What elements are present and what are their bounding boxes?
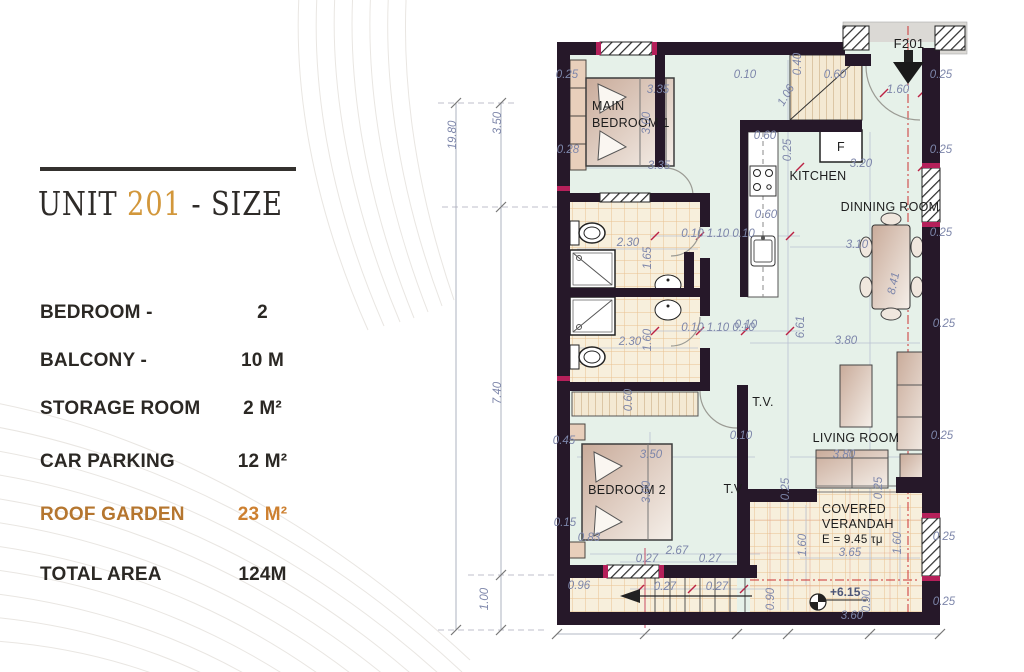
dim-label: 2.30 bbox=[616, 237, 640, 249]
spec-label: BEDROOM - bbox=[40, 302, 225, 324]
dining-chair bbox=[860, 277, 872, 297]
spec-value: 2 bbox=[225, 302, 300, 324]
dim-label: 0.25 bbox=[782, 138, 794, 161]
dim-label: 0.25 bbox=[930, 69, 953, 81]
dim-label: 0.60 bbox=[754, 130, 777, 142]
dim-label: 0.27 bbox=[636, 553, 659, 565]
dim-label: 0.27 bbox=[699, 553, 722, 565]
page-title: UNIT 201 - SIZE bbox=[38, 184, 283, 223]
dim-label: 3.80 bbox=[835, 335, 858, 347]
fridge-label: F bbox=[837, 140, 845, 154]
dim-label: 1.65 bbox=[642, 246, 654, 269]
room-label-main-bedroom-1: MAIN bbox=[592, 99, 624, 113]
dim-label: 2.30 bbox=[618, 336, 642, 348]
dim-label: 3.65 bbox=[839, 547, 862, 559]
elevation-label: +6.15 bbox=[830, 585, 861, 599]
dim-label: 0.25 bbox=[933, 596, 956, 608]
dim-label: 0.60 bbox=[824, 69, 847, 81]
dim-label: 1.60 bbox=[797, 533, 809, 556]
title-prefix: UNIT bbox=[38, 184, 117, 223]
verandah-area-label: E = 9.45 τμ bbox=[822, 534, 883, 546]
spec-label: BALCONY - bbox=[40, 350, 225, 372]
spec-row-total-area: TOTAL AREA 124M bbox=[40, 564, 300, 586]
dim-label: 0.25 bbox=[930, 144, 953, 156]
window-right-2 bbox=[922, 518, 940, 576]
dim-label: 2.67 bbox=[665, 545, 689, 557]
b2-nightstand bbox=[569, 542, 585, 558]
dim-label: 6.61 bbox=[795, 316, 807, 338]
dim-label: 0.45 bbox=[553, 435, 576, 447]
dim-label: 0.90 bbox=[765, 587, 777, 610]
opening-bath-top bbox=[600, 193, 650, 202]
landing-wall-1 bbox=[843, 26, 869, 50]
dim-label: 0.96 bbox=[568, 580, 591, 592]
dim-label: 1.60 bbox=[642, 328, 654, 351]
title-unit-number: 201 bbox=[127, 184, 182, 223]
spec-value: 2 M² bbox=[225, 398, 300, 420]
spec-value: 12 M² bbox=[225, 451, 300, 473]
unit-number-label: F201 bbox=[894, 36, 925, 51]
dim-label: 0.40 bbox=[792, 52, 804, 75]
dim-label: 0.25 bbox=[780, 477, 792, 500]
spec-row-roof-garden: ROOF GARDEN 23 M² bbox=[40, 504, 300, 526]
dim-label: 3.20 bbox=[850, 158, 873, 170]
dining-chair bbox=[911, 277, 923, 297]
dim-label: 0.25 bbox=[930, 227, 953, 239]
dim-label: 1.60 bbox=[892, 531, 904, 554]
dim-label: 3.00 bbox=[641, 111, 653, 134]
toilet-2 bbox=[570, 345, 579, 369]
b2-wardrobe bbox=[572, 392, 698, 416]
toilet-1 bbox=[570, 221, 579, 245]
dim-label: 0.27 bbox=[706, 581, 729, 593]
dining-chair bbox=[911, 237, 923, 257]
dim-label: 3.60 bbox=[841, 610, 864, 622]
unit-info-panel: UNIT 201 - SIZE BEDROOM - 2 BALCONY - 10… bbox=[0, 0, 440, 672]
brochure-page: MAIN BEDROOM 1 KITCHEN DINNING ROOM LIVI… bbox=[0, 0, 1024, 672]
dining-chair bbox=[881, 308, 901, 320]
tv-label-1: T.V. bbox=[752, 395, 774, 409]
dim-label: 0.10 bbox=[730, 430, 753, 442]
spec-value: 10 M bbox=[225, 350, 300, 372]
spec-row-balcony: BALCONY - 10 M bbox=[40, 350, 300, 372]
dim-label: 0.15 bbox=[554, 517, 577, 529]
dim-label: 0.10 bbox=[735, 319, 758, 331]
dining-table bbox=[872, 225, 910, 309]
title-rule bbox=[40, 167, 296, 171]
dim-label: 0.60 bbox=[623, 388, 635, 411]
dim-label: 19.80 bbox=[447, 120, 459, 149]
spec-label: CAR PARKING bbox=[40, 451, 225, 473]
dim-label: 0.83 bbox=[578, 532, 601, 544]
dim-label: 7.40 bbox=[492, 381, 504, 404]
window-bottom-strip bbox=[607, 565, 659, 578]
dim-label: 3.50 bbox=[640, 449, 663, 461]
dim-label: 0.25 bbox=[931, 430, 954, 442]
room-label-verandah-1: COVERED bbox=[822, 502, 886, 516]
title-suffix: - SIZE bbox=[191, 184, 283, 223]
dim-label: 3.00 bbox=[641, 480, 653, 503]
spec-label: ROOF GARDEN bbox=[40, 504, 225, 526]
dim-label: 3.35 bbox=[647, 84, 670, 96]
spec-row-bedroom: BEDROOM - 2 bbox=[40, 302, 300, 324]
coffee-table bbox=[840, 365, 872, 427]
spec-row-storage: STORAGE ROOM 2 M² bbox=[40, 398, 300, 420]
dim-label: 0.28 bbox=[557, 144, 580, 156]
room-label-bedroom2: BEDROOM 2 bbox=[588, 483, 666, 497]
dim-label: 0.10 bbox=[734, 69, 757, 81]
dim-label: 1.00 bbox=[479, 587, 491, 610]
dim-label: 1.60 bbox=[887, 84, 910, 96]
dim-label: 0.60 bbox=[755, 209, 778, 221]
room-label-dining: DINNING ROOM bbox=[841, 200, 940, 214]
landing-wall-2 bbox=[935, 26, 965, 50]
dim-label: 0.25 bbox=[873, 476, 885, 499]
dim-label: 0.25 bbox=[933, 531, 956, 543]
dim-label: 0.25 bbox=[556, 69, 579, 81]
dim-label: 0.25 bbox=[933, 318, 956, 330]
dim-label: 3.35 bbox=[648, 160, 671, 172]
entry-arrow-stem bbox=[904, 50, 913, 62]
spec-label: TOTAL AREA bbox=[40, 564, 225, 586]
spec-value: 23 M² bbox=[225, 504, 300, 526]
window-top bbox=[600, 42, 652, 55]
dim-label: 0.90 bbox=[861, 589, 873, 612]
dim-label: 0.10 1.10 0.10 bbox=[681, 228, 755, 240]
room-label-living: LIVING ROOM bbox=[813, 431, 900, 445]
dim-label: 3.10 bbox=[846, 239, 869, 251]
room-label-verandah-2: VERANDAH bbox=[822, 517, 894, 531]
room-label-kitchen: KITCHEN bbox=[790, 169, 847, 183]
dim-label: 3.80 bbox=[833, 449, 856, 461]
spec-row-parking: CAR PARKING 12 M² bbox=[40, 451, 300, 473]
spec-label: STORAGE ROOM bbox=[40, 398, 225, 420]
dim-label: 0.27 bbox=[654, 581, 677, 593]
spec-value: 124M bbox=[225, 564, 300, 586]
basin-2 bbox=[655, 300, 681, 320]
room-label-main-bedroom-2: BEDROOM 1 bbox=[592, 116, 670, 130]
tv-label-2: T.V bbox=[724, 482, 743, 496]
dim-label: 3.50 bbox=[492, 111, 504, 134]
dining-chair bbox=[881, 213, 901, 225]
